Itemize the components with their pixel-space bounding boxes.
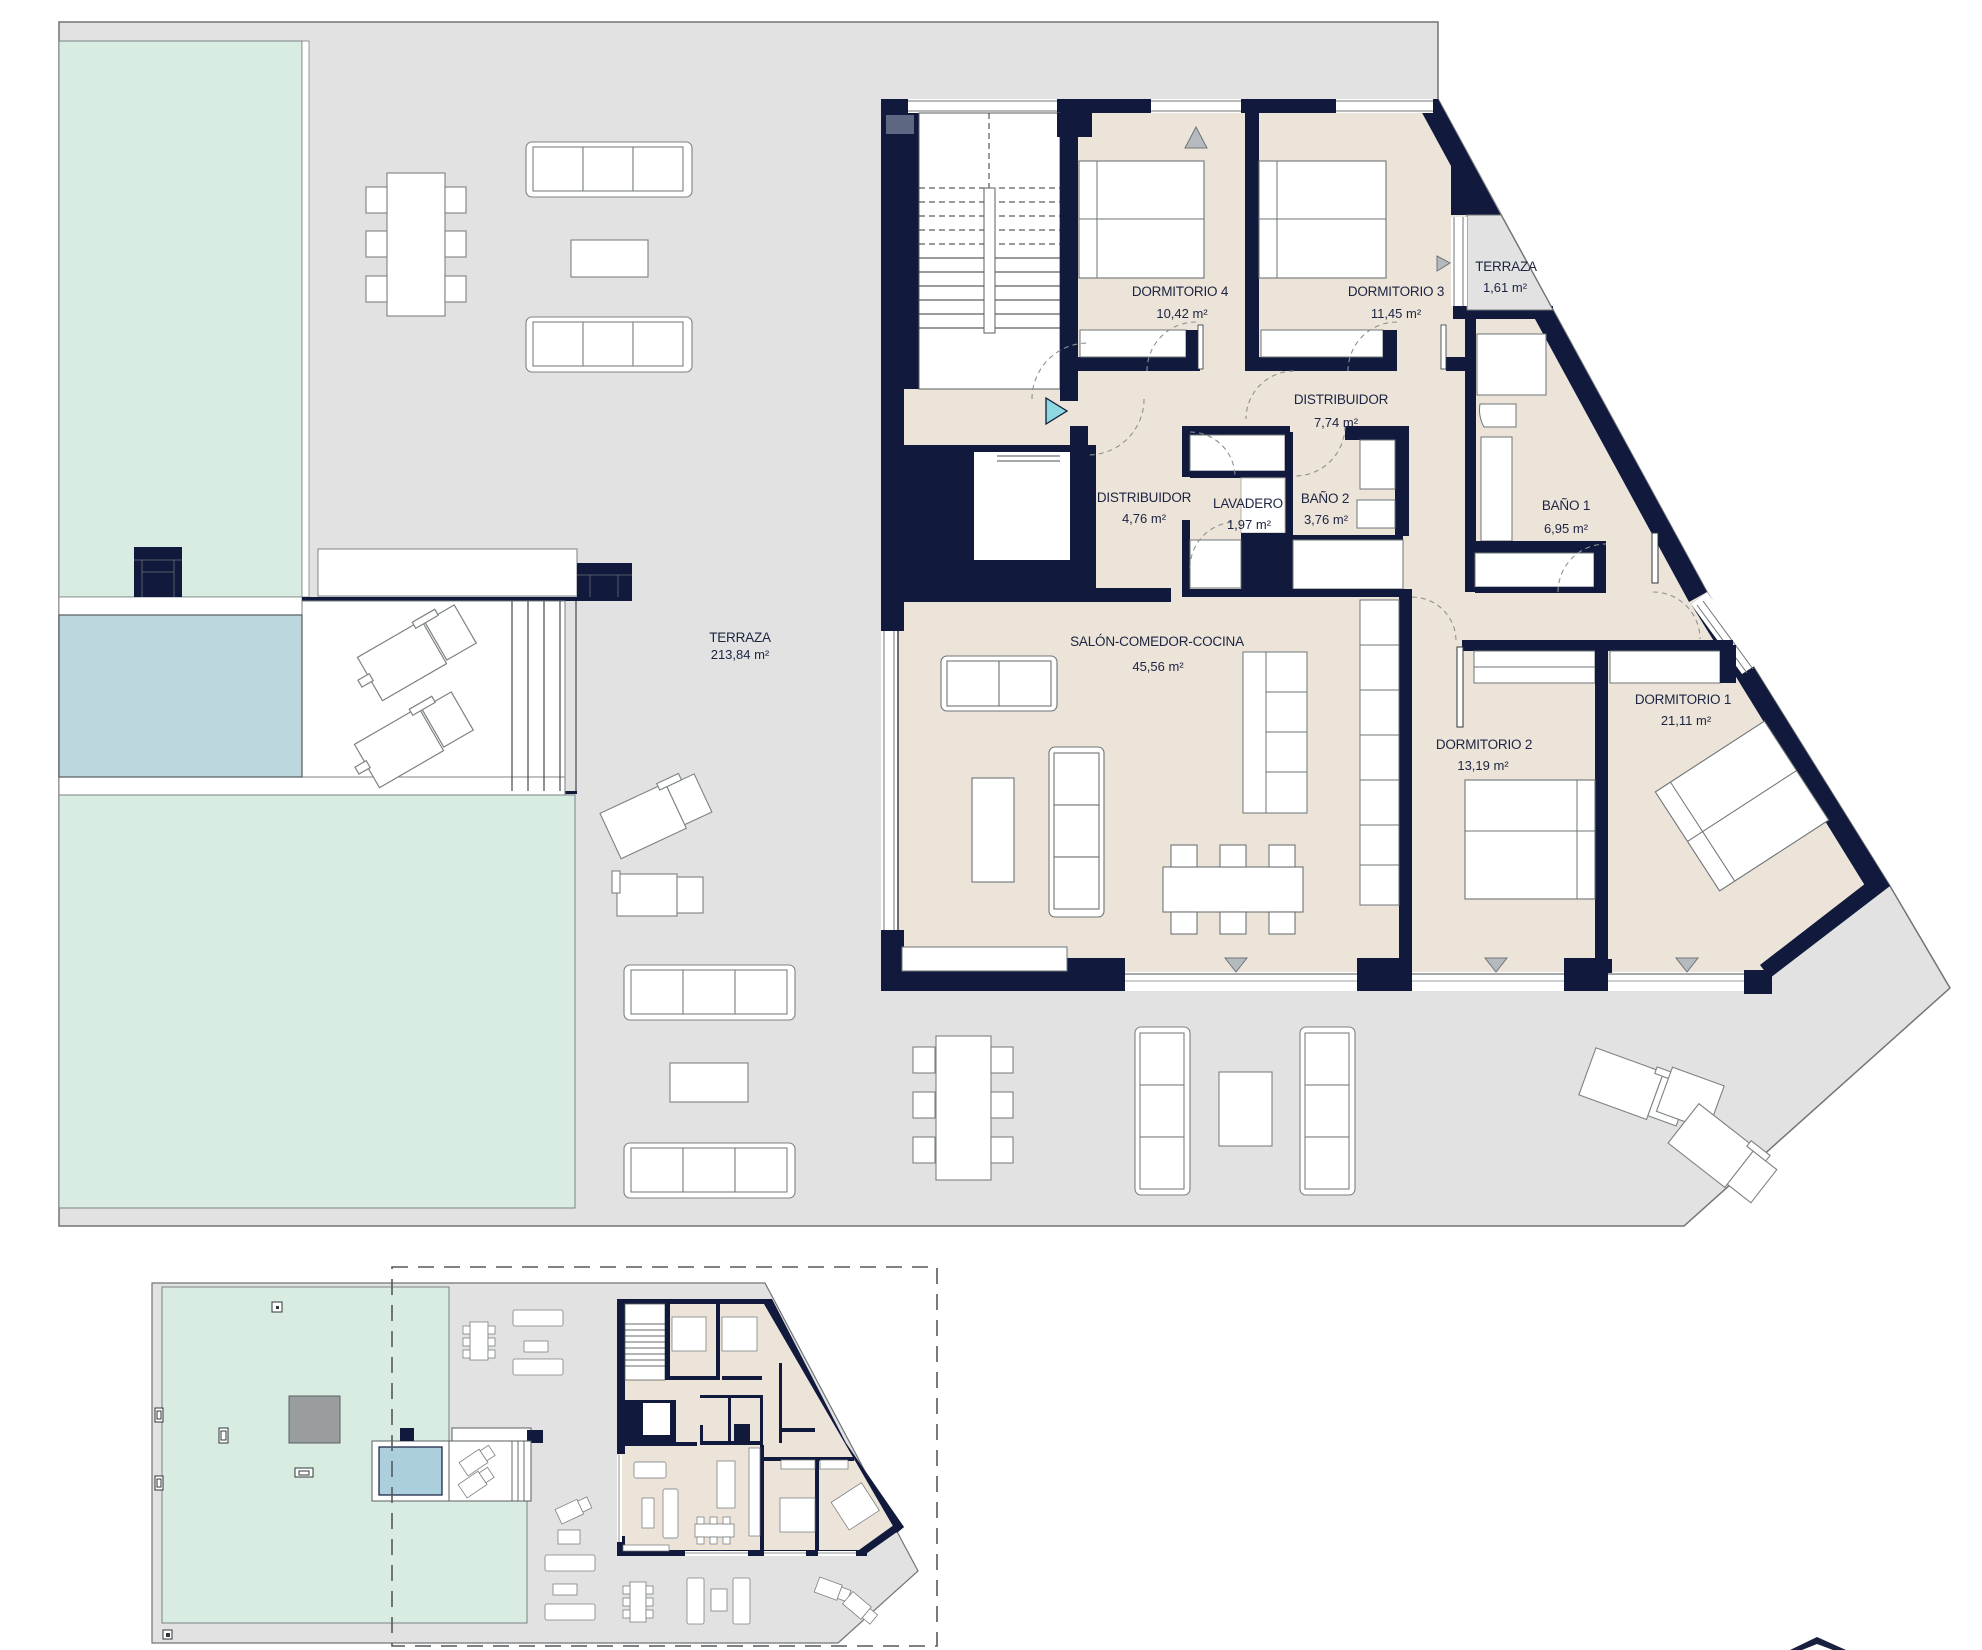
svg-text:6,95 m²: 6,95 m²: [1544, 521, 1589, 536]
svg-text:1,61 m²: 1,61 m²: [1483, 280, 1528, 295]
svg-text:11,45 m²: 11,45 m²: [1371, 306, 1422, 321]
svg-text:DORMITORIO 3: DORMITORIO 3: [1348, 284, 1444, 299]
svg-text:LAVADERO: LAVADERO: [1213, 496, 1283, 511]
svg-text:10,42 m²: 10,42 m²: [1156, 306, 1208, 321]
svg-text:3,76 m²: 3,76 m²: [1304, 512, 1349, 527]
svg-text:BAÑO 2: BAÑO 2: [1301, 491, 1349, 506]
svg-text:DORMITORIO 2: DORMITORIO 2: [1436, 737, 1532, 752]
svg-text:SALÓN-COMEDOR-COCINA: SALÓN-COMEDOR-COCINA: [1070, 634, 1244, 649]
svg-text:TERRAZA: TERRAZA: [709, 630, 771, 645]
svg-text:DORMITORIO 4: DORMITORIO 4: [1132, 284, 1229, 299]
svg-text:213,84 m²: 213,84 m²: [711, 647, 770, 662]
svg-text:4,76 m²: 4,76 m²: [1122, 511, 1167, 526]
svg-text:TERRAZA: TERRAZA: [1475, 259, 1537, 274]
svg-text:7,74 m²: 7,74 m²: [1314, 415, 1359, 430]
svg-text:13,19 m²: 13,19 m²: [1457, 758, 1509, 773]
svg-text:DISTRIBUIDOR: DISTRIBUIDOR: [1097, 490, 1192, 505]
svg-text:DORMITORIO 1: DORMITORIO 1: [1635, 692, 1731, 707]
svg-text:BAÑO 1: BAÑO 1: [1542, 498, 1590, 513]
svg-text:DISTRIBUIDOR: DISTRIBUIDOR: [1294, 392, 1389, 407]
svg-text:45,56 m²: 45,56 m²: [1132, 659, 1184, 674]
svg-text:1,97 m²: 1,97 m²: [1227, 517, 1272, 532]
svg-text:21,11 m²: 21,11 m²: [1661, 713, 1712, 728]
